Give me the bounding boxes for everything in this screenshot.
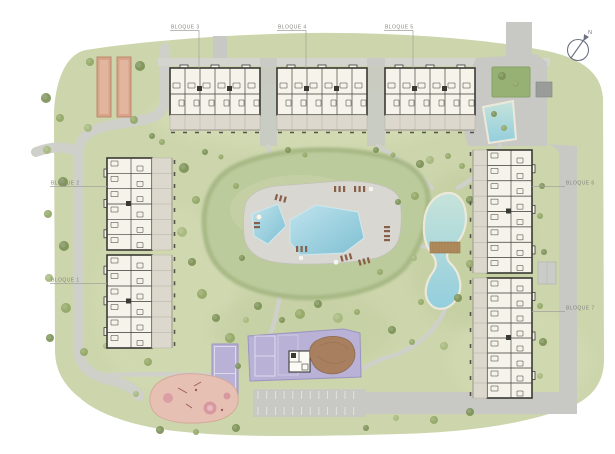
tree-icon [440, 342, 448, 350]
tree-icon [188, 258, 196, 266]
tree-icon [285, 147, 291, 153]
building-bloque-1 [104, 255, 175, 348]
lounger-group [354, 186, 365, 192]
tree-icon [56, 114, 64, 122]
tree-icon [149, 133, 155, 139]
tree-icon [144, 358, 152, 366]
svg-text:N: N [588, 30, 592, 36]
tree-icon [491, 111, 497, 117]
svg-text:BLOQUE 2: BLOQUE 2 [51, 181, 80, 187]
lake-area [424, 193, 466, 309]
west-road-entry [36, 148, 78, 153]
building-bloque-2 [104, 158, 175, 250]
tree-icon [179, 163, 189, 173]
tree-icon [373, 147, 379, 153]
tree-icon [254, 302, 262, 310]
lounger-group [296, 246, 307, 252]
tree-icon [295, 309, 305, 319]
tree-icon [84, 124, 92, 132]
tree-icon [393, 415, 399, 421]
utility-building [536, 82, 552, 97]
north-arrow-icon: N [568, 30, 593, 61]
tree-icon [41, 93, 51, 103]
tree-icon [466, 408, 474, 416]
tree-icon [537, 373, 543, 379]
sports-pavilion [289, 351, 310, 372]
tree-icon [177, 227, 187, 237]
building-bloque-6 [471, 150, 536, 273]
tree-icon [80, 348, 88, 356]
svg-text:BLOQUE 1: BLOQUE 1 [51, 278, 80, 284]
tree-icon [243, 317, 249, 323]
lake-bridge [430, 242, 460, 253]
tree-icon [498, 72, 506, 80]
tree-icon [501, 125, 507, 131]
tree-icon [61, 303, 71, 313]
tree-icon [314, 300, 322, 308]
block-gap-path-2 [367, 58, 385, 146]
tree-icon [395, 199, 401, 205]
tree-icon [86, 58, 94, 66]
tree-icon [539, 183, 545, 189]
tree-icon [445, 153, 451, 159]
northeast-road-stub [506, 22, 532, 58]
tree-icon [43, 146, 51, 154]
tree-icon [388, 326, 396, 334]
tree-icon [133, 391, 139, 397]
tree-icon [233, 183, 239, 189]
tree-icon [202, 149, 208, 155]
tree-icon [411, 192, 419, 200]
tree-icon [235, 363, 241, 369]
tree-icon [411, 255, 417, 261]
plaza-pool [483, 101, 516, 143]
tree-icon [44, 210, 52, 218]
play-equipment [221, 409, 223, 411]
tree-icon [418, 299, 424, 305]
tree-icon [46, 334, 54, 342]
pool-garden [204, 150, 428, 298]
tree-icon [333, 313, 343, 323]
tree-icon [430, 416, 438, 424]
tree-icon [537, 213, 543, 219]
tree-icon [225, 333, 235, 343]
site-plan: BLOQUE 3 BLOQUE 4 BLOQUE 5 BLOQUE 2 BLOQ… [0, 0, 615, 454]
tree-icon [232, 424, 240, 432]
tree-icon [135, 61, 145, 71]
svg-text:BLOQUE 5: BLOQUE 5 [385, 25, 414, 31]
tree-icon [239, 255, 245, 261]
tree-icon [193, 429, 199, 435]
tree-icon [416, 160, 424, 168]
tree-icon [303, 153, 308, 158]
svg-text:BLOQUE 6: BLOQUE 6 [566, 181, 595, 187]
tree-icon [454, 294, 462, 302]
tree-icon [354, 309, 360, 315]
play-equipment [195, 389, 197, 391]
tree-icon [159, 139, 165, 145]
building-bloque-3 [170, 65, 260, 133]
tree-icon [537, 303, 543, 309]
building-bloque-4 [277, 65, 367, 133]
play-equipment [224, 393, 231, 400]
tree-icon [391, 153, 396, 158]
umbrella [333, 259, 339, 265]
south-parking [253, 389, 366, 417]
building-bloque-5 [385, 65, 475, 133]
tree-icon [156, 426, 164, 434]
tree-icon [377, 269, 383, 275]
svg-text:BLOQUE 4: BLOQUE 4 [278, 25, 307, 31]
lounger-group [334, 186, 345, 192]
tree-icon [219, 155, 224, 160]
svg-text:BLOQUE 3: BLOQUE 3 [171, 25, 200, 31]
tree-icon [426, 156, 434, 164]
play-equipment [207, 405, 213, 411]
umbrella [298, 255, 304, 261]
tree-icon [130, 116, 138, 124]
umbrella [256, 214, 262, 220]
tree-icon [212, 314, 220, 322]
tree-icon [459, 163, 465, 169]
tree-icon [279, 317, 285, 323]
playground [150, 374, 238, 423]
tree-icon [363, 425, 369, 431]
tree-icon [59, 241, 69, 251]
plaza-planter [492, 67, 530, 97]
building-bloque-7 [471, 278, 536, 398]
tree-icon [539, 338, 547, 346]
svg-text:BLOQUE 7: BLOQUE 7 [566, 306, 595, 312]
landscaped-bowl [310, 336, 355, 373]
tree-icon [409, 339, 415, 345]
tree-icon [197, 289, 207, 299]
tree-icon [541, 249, 547, 255]
tree-icon [192, 196, 200, 204]
block-gap-path-1 [260, 58, 277, 146]
tree-icon [513, 81, 519, 87]
play-equipment [163, 393, 173, 403]
umbrella [368, 186, 374, 192]
